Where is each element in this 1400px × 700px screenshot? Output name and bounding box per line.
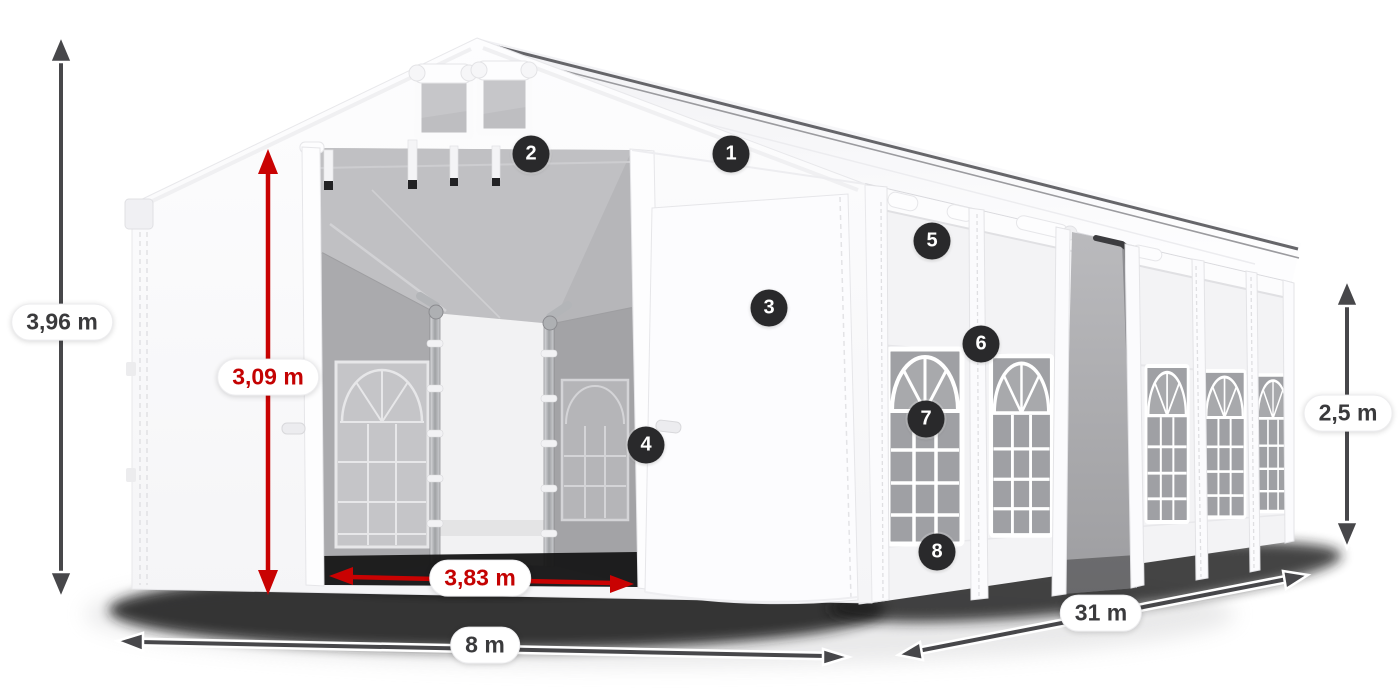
- feature-marker-4: 4: [628, 427, 665, 464]
- feature-marker-5: 5: [914, 223, 951, 260]
- feature-marker-7: 7: [908, 401, 945, 438]
- side-door-opening: [1063, 232, 1136, 594]
- door-handle: [282, 423, 305, 434]
- dimension-label-door-width: 3,83 m: [429, 560, 531, 597]
- feature-marker-8: 8: [919, 534, 956, 571]
- interior-window-ghost-right: [562, 380, 628, 520]
- feature-marker-1: 1: [713, 136, 750, 173]
- side-window-3: [1146, 366, 1188, 522]
- feature-marker-3: 3: [751, 290, 788, 327]
- side-window-2: [991, 356, 1052, 535]
- eave-corner-box: [125, 199, 153, 229]
- front-door-opening: [318, 148, 639, 587]
- feature-marker-6: 6: [963, 326, 1000, 363]
- gable-window-left: [409, 64, 477, 136]
- tent-dimension-diagram: 3,96 m 3,09 m 3,83 m 8 m 31 m 2,5 m 1 2 …: [0, 0, 1400, 700]
- dimension-label-total-height: 3,96 m: [11, 304, 113, 341]
- dimension-label-total-length: 31 m: [1060, 595, 1142, 632]
- dimension-label-side-height: 2,5 m: [1304, 395, 1393, 432]
- side-window-1: [888, 349, 962, 544]
- tent-illustration: [0, 0, 1400, 700]
- dimension-label-door-height: 3,09 m: [217, 359, 319, 396]
- dimension-label-total-width: 8 m: [450, 627, 520, 664]
- side-window-4: [1204, 371, 1245, 517]
- feature-marker-2: 2: [513, 136, 550, 173]
- front-door-leaf-right: [645, 194, 858, 604]
- interior-window-ghost-left: [336, 362, 428, 547]
- gable-window-right: [471, 61, 537, 132]
